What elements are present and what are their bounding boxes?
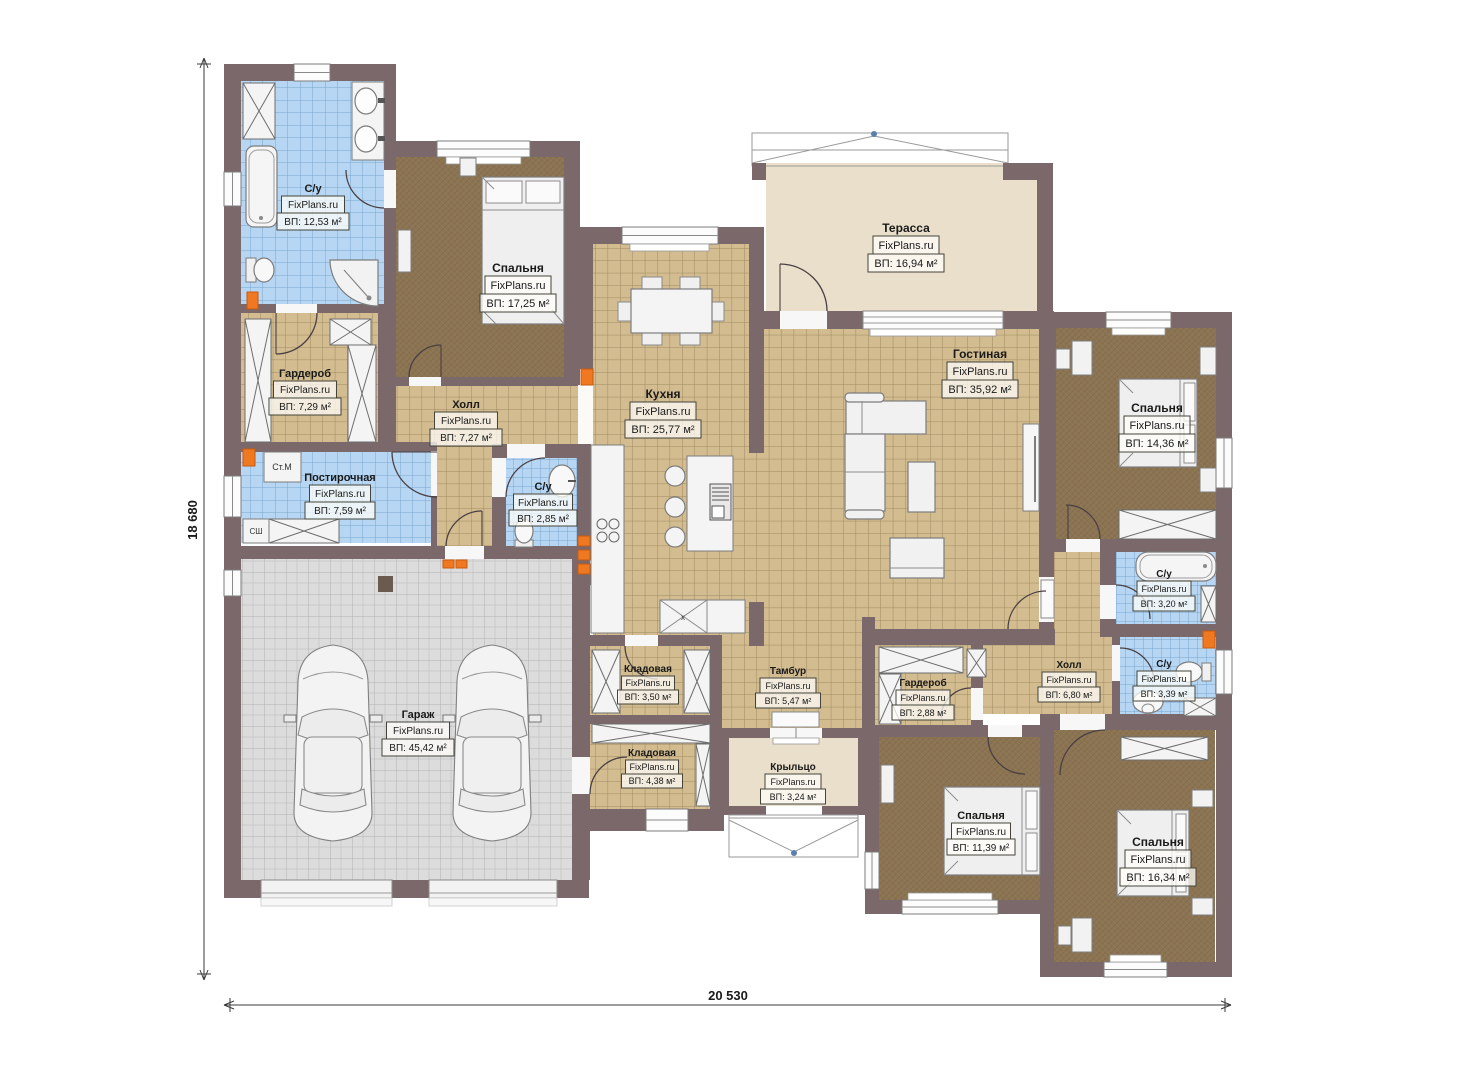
svg-text:Гараж: Гараж bbox=[402, 709, 435, 721]
svg-text:FixPlans.ru: FixPlans.ru bbox=[770, 777, 815, 787]
svg-text:Кладовая: Кладовая bbox=[624, 664, 672, 675]
svg-text:FixPlans.ru: FixPlans.ru bbox=[956, 827, 1006, 838]
svg-text:ВП: 14,36 м²: ВП: 14,36 м² bbox=[1125, 438, 1189, 450]
svg-text:ВП: 5,47 м²: ВП: 5,47 м² bbox=[765, 696, 812, 706]
svg-text:Ст.М: Ст.М bbox=[272, 462, 292, 472]
svg-text:СШ: СШ bbox=[249, 527, 262, 536]
svg-text:Гардероб: Гардероб bbox=[899, 677, 946, 689]
svg-text:С/у: С/у bbox=[304, 183, 322, 195]
svg-text:FixPlans.ru: FixPlans.ru bbox=[635, 406, 690, 418]
svg-text:FixPlans.ru: FixPlans.ru bbox=[288, 200, 338, 211]
svg-text:ВП: 3,50 м²: ВП: 3,50 м² bbox=[625, 692, 672, 702]
svg-text:С/у: С/у bbox=[1156, 659, 1172, 670]
svg-text:ВП: 45,42 м²: ВП: 45,42 м² bbox=[389, 743, 447, 754]
svg-text:ВП: 16,94 м²: ВП: 16,94 м² bbox=[874, 258, 938, 270]
svg-text:ВП: 4,38 м²: ВП: 4,38 м² bbox=[629, 776, 676, 786]
svg-text:ВП: 2,85 м²: ВП: 2,85 м² bbox=[517, 514, 570, 525]
svg-text:Холл: Холл bbox=[452, 399, 480, 411]
svg-text:ВП: 7,29 м²: ВП: 7,29 м² bbox=[279, 402, 332, 413]
svg-text:FixPlans.ru: FixPlans.ru bbox=[280, 385, 330, 396]
svg-text:20 530: 20 530 bbox=[708, 988, 748, 1003]
svg-text:ВП: 2,88 м²: ВП: 2,88 м² bbox=[900, 708, 947, 718]
svg-text:FixPlans.ru: FixPlans.ru bbox=[1046, 675, 1091, 685]
svg-text:Тамбур: Тамбур bbox=[770, 665, 806, 677]
svg-text:FixPlans.ru: FixPlans.ru bbox=[878, 240, 933, 252]
svg-text:FixPlans.ru: FixPlans.ru bbox=[315, 489, 365, 500]
svg-text:Холл: Холл bbox=[1056, 660, 1081, 671]
svg-text:ВП: 3,20 м²: ВП: 3,20 м² bbox=[1141, 599, 1188, 609]
svg-text:FixPlans.ru: FixPlans.ru bbox=[1141, 674, 1186, 684]
svg-text:FixPlans.ru: FixPlans.ru bbox=[952, 366, 1007, 378]
svg-text:ВП: 3,24 м²: ВП: 3,24 м² bbox=[770, 792, 817, 802]
svg-text:Кухня: Кухня bbox=[645, 387, 680, 401]
svg-text:Гостиная: Гостиная bbox=[953, 347, 1007, 361]
svg-text:ВП: 3,39 м²: ВП: 3,39 м² bbox=[1141, 689, 1188, 699]
svg-text:Спальня: Спальня bbox=[1131, 401, 1183, 415]
svg-text:ВП: 17,25 м²: ВП: 17,25 м² bbox=[486, 298, 550, 310]
svg-text:FixPlans.ru: FixPlans.ru bbox=[625, 678, 670, 688]
svg-text:С/у: С/у bbox=[1156, 569, 1172, 580]
svg-text:ВП: 16,34 м²: ВП: 16,34 м² bbox=[1126, 872, 1190, 884]
svg-text:FixPlans.ru: FixPlans.ru bbox=[900, 693, 945, 703]
svg-text:FixPlans.ru: FixPlans.ru bbox=[490, 280, 545, 292]
svg-text:Терасса: Терасса bbox=[882, 221, 930, 235]
svg-text:Спальня: Спальня bbox=[1132, 835, 1184, 849]
svg-text:ВП: 35,92 м²: ВП: 35,92 м² bbox=[948, 384, 1012, 396]
svg-text:Спальня: Спальня bbox=[492, 261, 544, 275]
svg-text:Крыльцо: Крыльцо bbox=[770, 762, 816, 773]
svg-text:ВП: 7,59 м²: ВП: 7,59 м² bbox=[314, 506, 367, 517]
svg-text:ВП: 12,53 м²: ВП: 12,53 м² bbox=[284, 217, 342, 228]
svg-text:ВП: 25,77 м²: ВП: 25,77 м² bbox=[631, 424, 695, 436]
svg-text:Постирочная: Постирочная bbox=[304, 472, 375, 484]
svg-text:18 680: 18 680 bbox=[185, 500, 200, 540]
svg-text:FixPlans.ru: FixPlans.ru bbox=[1141, 584, 1186, 594]
svg-text:Кладовая: Кладовая bbox=[628, 748, 676, 759]
svg-text:x: x bbox=[681, 613, 685, 622]
svg-text:FixPlans.ru: FixPlans.ru bbox=[765, 681, 810, 691]
svg-text:С/у: С/у bbox=[534, 481, 552, 493]
svg-text:FixPlans.ru: FixPlans.ru bbox=[1129, 420, 1184, 432]
svg-text:Спальня: Спальня bbox=[957, 810, 1005, 822]
svg-text:ВП: 11,39 м²: ВП: 11,39 м² bbox=[953, 843, 1010, 854]
svg-text:FixPlans.ru: FixPlans.ru bbox=[1130, 854, 1185, 866]
svg-text:FixPlans.ru: FixPlans.ru bbox=[441, 416, 491, 427]
svg-text:ВП: 7,27 м²: ВП: 7,27 м² bbox=[440, 433, 493, 444]
svg-text:Гардероб: Гардероб bbox=[279, 368, 331, 380]
svg-text:FixPlans.ru: FixPlans.ru bbox=[629, 762, 674, 772]
svg-text:FixPlans.ru: FixPlans.ru bbox=[518, 498, 568, 509]
svg-text:ВП: 6,80 м²: ВП: 6,80 м² bbox=[1046, 690, 1093, 700]
svg-text:FixPlans.ru: FixPlans.ru bbox=[393, 726, 443, 737]
